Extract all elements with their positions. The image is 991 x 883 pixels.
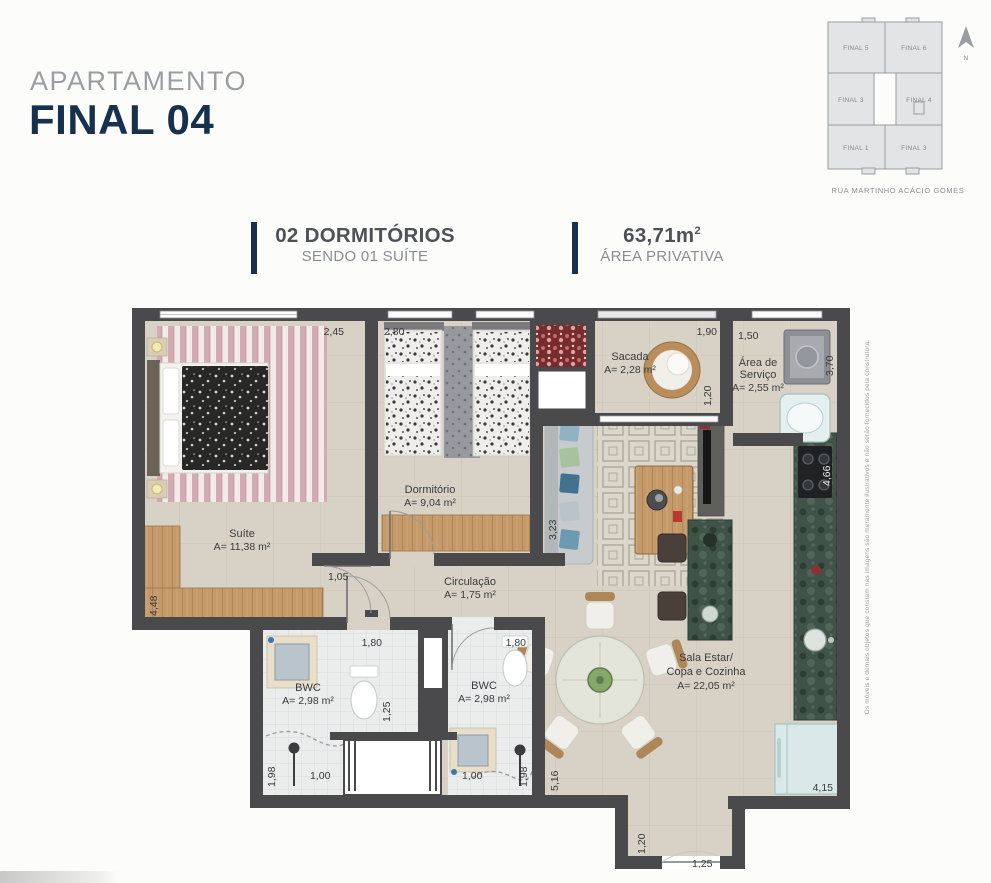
room-area-circulacao: A= 1,75 m² <box>444 589 496 601</box>
single-bed <box>384 322 444 456</box>
dim-dorm-width: 2,80 <box>384 326 405 338</box>
kitchen-sink <box>804 629 826 651</box>
room-label-sala-2: Copa e Cozinha <box>667 666 747 678</box>
apartment-title: FINAL 04 <box>29 96 214 144</box>
toilet <box>351 681 377 719</box>
dim-bwc2-height: 1,98 <box>518 766 530 787</box>
bed-headboard <box>147 360 160 476</box>
dim-bwc1-door: 1,00 <box>310 770 331 782</box>
building-key-plan: FINAL 5 FINAL 6 FINAL 3 FINAL 4 FINAL 1 … <box>818 14 982 180</box>
faucet <box>451 769 457 775</box>
toilet-tank <box>350 666 378 677</box>
key-plan-notch <box>862 168 875 174</box>
bedrooms-title: 02 DORMITÓRIOS <box>260 224 470 248</box>
dim-bwc1-height: 1,98 <box>266 766 278 787</box>
dim-sala-height: 5,16 <box>549 770 561 791</box>
wardrobe <box>137 588 323 621</box>
lamp <box>152 342 162 352</box>
shaft <box>538 371 586 409</box>
room-area-bwc1: A= 2,98 m² <box>282 695 334 707</box>
room-area-sala: A= 22,05 m² <box>677 680 735 692</box>
key-plan-label: FINAL 5 <box>843 45 869 52</box>
svg-text:N: N <box>964 55 969 62</box>
shower-head <box>515 745 526 756</box>
street-name: RUA MARTINHO ACÁCIO GOMES <box>806 186 990 195</box>
pillow <box>163 420 179 466</box>
dim-sala-wall: 3,23 <box>547 519 559 540</box>
dim-bwc-divider: 1,25 <box>381 701 393 722</box>
dim-sacada-width: 1,90 <box>697 326 718 338</box>
key-plan-notch <box>906 168 919 174</box>
room-area-servico: A= 2,55 m² <box>732 382 784 394</box>
bathroom-sink <box>275 644 309 680</box>
north-arrow-icon: N <box>958 26 974 62</box>
room-area-bwc2: A= 2,98 m² <box>458 693 510 705</box>
room-area-suite: A= 11,38 m² <box>214 541 271 553</box>
dim-suite-width: 2,45 <box>324 326 345 338</box>
dim-bwc2-width: 1,80 <box>506 637 527 649</box>
dim-servico-height: 3,70 <box>824 355 836 376</box>
dim-suite-height: 4,48 <box>148 595 160 616</box>
key-plan-label: FINAL 4 <box>906 97 932 104</box>
room-label-suite: Suíte <box>229 528 255 540</box>
dim-cozinha-height: 4,66 <box>821 465 833 486</box>
lamp <box>152 484 162 494</box>
bedroom-furniture <box>382 322 532 551</box>
dim-circ-width: 1,05 <box>328 571 349 583</box>
bathroom-sink <box>458 735 488 766</box>
kettle <box>811 565 821 575</box>
entry-hall-void <box>344 740 441 795</box>
flower-planter <box>536 325 586 367</box>
spec-divider-bar <box>251 222 257 274</box>
pillow <box>163 368 179 414</box>
room-label-circulacao: Circulação <box>444 576 496 588</box>
room-label-servico-2: Serviço <box>740 369 777 381</box>
room-area-dormitorio: A= 9,04 m² <box>404 497 456 509</box>
key-plan-label: FINAL 6 <box>901 45 927 52</box>
room-label-sacada: Sacada <box>611 351 649 363</box>
dim-sacada-depth: 1,20 <box>702 385 714 406</box>
duvet <box>182 366 268 470</box>
area-spec: 63,71m2 ÁREA PRIVATIVA <box>578 224 746 265</box>
dim-sala-width: 4,15 <box>813 782 834 794</box>
area-value: 63,71m2 <box>578 224 746 248</box>
room-label-bwc1: BWC <box>295 682 321 694</box>
room-area-sacada: A= 2,28 m² <box>604 364 656 376</box>
floor-plan: Suíte A= 11,38 m² Dormitório A= 9,04 m² … <box>132 308 850 878</box>
dim-entry-door: 1,25 <box>692 858 713 870</box>
dim-entry-height: 1,20 <box>636 833 648 854</box>
key-plan-label: FINAL 3 <box>838 97 864 104</box>
key-plan-label: FINAL 1 <box>843 145 869 152</box>
shower-head <box>289 743 300 754</box>
wardrobe <box>382 515 530 551</box>
single-bed <box>472 322 532 456</box>
key-plan-label: FINAL 3 <box>901 145 927 152</box>
tv-cabinet <box>698 416 724 516</box>
dim-bwc2-door: 1,00 <box>462 770 483 782</box>
bedrooms-spec: 02 DORMITÓRIOS SENDO 01 SUÍTE <box>260 224 470 265</box>
toilet <box>503 650 527 686</box>
bedrooms-subtitle: SENDO 01 SUÍTE <box>260 248 470 265</box>
room-label-sala-1: Sala Estar/ <box>679 652 734 664</box>
room-label-dormitorio: Dormitório <box>405 484 456 496</box>
room-label-servico-1: Área de <box>739 356 778 369</box>
sofa <box>545 416 593 564</box>
area-subtitle: ÁREA PRIVATIVA <box>578 248 746 265</box>
disclaimer-text: Os móveis e demais objetos que constam n… <box>864 321 871 733</box>
bar-stool <box>658 534 686 562</box>
faucet <box>268 637 274 643</box>
scan-artifact <box>0 871 118 883</box>
dining-chair <box>585 592 615 629</box>
dim-bwc1-width: 1,80 <box>362 637 383 649</box>
sliding-door <box>600 416 718 422</box>
room-label-bwc2: BWC <box>471 680 497 692</box>
apartment-kicker: APARTAMENTO <box>30 66 247 97</box>
shaft <box>424 638 442 688</box>
bar-stool <box>658 592 686 620</box>
dim-servico-width: 1,50 <box>738 330 759 342</box>
